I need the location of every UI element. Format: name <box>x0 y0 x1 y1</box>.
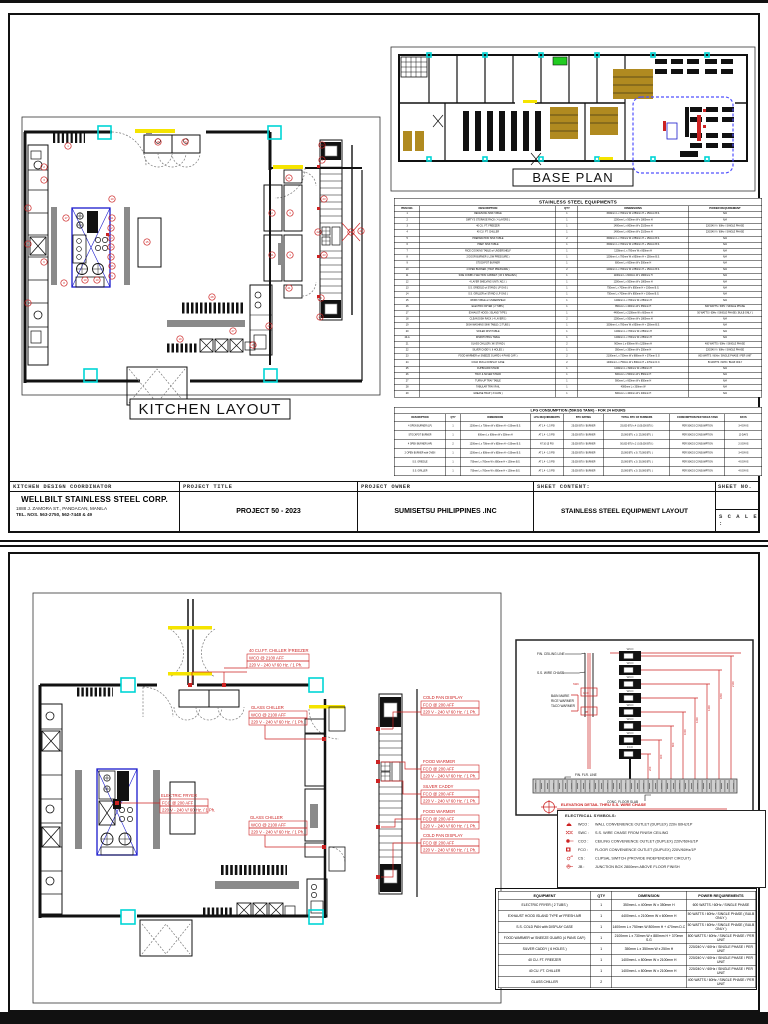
svg-text:220 V - 240 V/ 60 Hz. / 1 Ph.: 220 V - 240 V/ 60 Hz. / 1 Ph. <box>423 710 476 715</box>
column-header: DIMENSION <box>612 891 687 900</box>
svg-text:23: 23 <box>322 253 326 257</box>
table-row: EXHAUST HOOD ISLAND TYPE w/ FRESH AIR144… <box>498 911 756 922</box>
svg-text:23: 23 <box>322 197 326 201</box>
wood-grid-lines <box>550 77 653 131</box>
svg-text:GLASS CHILLER: GLASS CHILLER <box>250 815 283 820</box>
sheet-1: 1234567171011121314151698101015181821232… <box>8 13 760 533</box>
svg-text:FCO @ 200 AFF: FCO @ 200 AFF <box>162 801 194 806</box>
electrical-legend: ELECTRICAL SYMBOLS: WCO : WALL CONVENIEN… <box>557 810 766 888</box>
legend-row: FCO : FLOOR CONVENIENCE OUTLET (DUPLEX) … <box>565 846 766 855</box>
lpg-table-body: 4 OPEN BURNER (LP)11200mm L x 700mm W x … <box>394 422 762 476</box>
lpg-table-header: DESCRIPTIONQTYDIMENSIONSLPG REQUIREMENTS… <box>394 414 762 422</box>
svg-text:18: 18 <box>183 140 187 144</box>
svg-text:21: 21 <box>287 176 291 180</box>
svg-text:26: 26 <box>359 229 363 233</box>
annotation-title: 40 CU.FT. CHILLER /FREEZER <box>249 648 309 653</box>
svg-text:ELECTRIC FRYER: ELECTRIC FRYER <box>161 793 197 798</box>
annotation-food-warmer-1: FOOD WARMER FCO @ 200 AFF 220 V - 240 V/… <box>381 759 479 779</box>
door-highlight <box>135 129 175 133</box>
column-header: LPG REQUIREMENTS <box>530 414 563 422</box>
svg-text:3: 3 <box>289 211 291 215</box>
kitchen-title-box: KITCHEN LAYOUT <box>130 399 290 419</box>
svg-text:9: 9 <box>111 274 113 278</box>
equipment-table-2-header: EQUIPMENTQTYDIMENSIONPOWER REQUIREMENTS <box>498 891 756 900</box>
svg-text:WCO: WCO <box>627 661 635 665</box>
item-callouts: 1234567171011121314151698101015181821232… <box>25 139 364 348</box>
svg-text:FOOD WARMER: FOOD WARMER <box>423 759 455 764</box>
svg-text:SILVER CADDY: SILVER CADDY <box>423 784 454 789</box>
sheet-content-value: STAINLESS STEEL EQUIPMENT LAYOUT <box>534 492 715 530</box>
svg-text:800: 800 <box>671 742 675 747</box>
equipment-table-title: STAINLESS STEEL EQUIPMENTS <box>394 198 762 206</box>
annotation-silver-caddy: SILVER CADDY FCO @ 200 AFF 220 V - 240 V… <box>381 781 479 804</box>
dining-tables <box>463 59 734 151</box>
table-row: SILVER CADDY ( 6 HOLES )1350mm L x 350mm… <box>498 944 756 955</box>
svg-text:1200: 1200 <box>695 717 699 723</box>
svg-text:COLD PAN DISPLAY: COLD PAN DISPLAY <box>423 833 463 838</box>
svg-text:220 V - 240 V/ 60 Hz. / 1 Ph.: 220 V - 240 V/ 60 Hz. / 1 Ph. <box>423 848 476 853</box>
walls <box>24 129 362 383</box>
coordinator-label: KITCHEN DESIGN COORDINATOR <box>10 482 179 492</box>
svg-text:4: 4 <box>27 206 29 210</box>
table-row: S.S. GRILLER1750mm L x 700mm W x 850mm H… <box>394 467 762 476</box>
dimension-lines: 200 400 800 1000 1200 1400 1800 2100 <box>641 656 735 779</box>
svg-text:GLASS CHILLER: GLASS CHILLER <box>251 705 284 710</box>
baseplan-title-box: BASE PLAN <box>513 169 633 186</box>
scale-label: S C A L E : <box>716 510 758 527</box>
sheet-content-label: SHEET CONTENT: <box>534 482 715 492</box>
company-tel: TEL. NOS. 563-2750, 562-7448 & 49 <box>16 512 179 517</box>
jb-symbol-icon <box>565 862 578 871</box>
svg-text:17: 17 <box>64 216 68 220</box>
column-header: POWER REQUIREMENTS <box>686 891 756 900</box>
sheet-content-cell: SHEET CONTENT: STAINLESS STEEL EQUIPMENT… <box>534 482 716 531</box>
top-cabinets <box>144 135 200 167</box>
equipment-table-2: EQUIPMENTQTYDIMENSIONPOWER REQUIREMENTS … <box>495 888 757 990</box>
lpg-table: LPG CONSUMPTION (50KGS TANK) - FOR 24 HO… <box>394 407 762 481</box>
table-row: 2 OPEN BURNER with OVEN11200mm L x 800mm… <box>394 449 762 458</box>
column-header: DESCRIPTION <box>394 414 445 422</box>
table-row: S.S. COLD PAN with DISPLAY CASE11400mm L… <box>498 922 756 933</box>
table-row: 40 CU. FT. CHILLER11400mm L x 800mm W x … <box>498 966 756 977</box>
svg-text:12: 12 <box>109 226 113 230</box>
svg-text:220 V - 240 V/ 60 Hz. / 1 Ph.: 220 V - 240 V/ 60 Hz. / 1 Ph. <box>251 720 304 725</box>
svg-text:400: 400 <box>659 754 663 759</box>
project-title-label: PROJECT TITLE <box>180 482 357 492</box>
svg-text:FCO @ 200 AFF: FCO @ 200 AFF <box>423 817 455 822</box>
equipment-table-2-body: ELECTRIC FRYER ( 2 TUBS )1350mm L x 400m… <box>498 900 756 988</box>
svg-text:10: 10 <box>110 197 114 201</box>
chase-code: JB <box>585 710 588 714</box>
title-block: KITCHEN DESIGN COORDINATOR WELLBILT STAI… <box>10 481 758 531</box>
svg-text:24: 24 <box>320 143 324 147</box>
annotation-line: WCO @ 2100 AFF <box>249 656 284 661</box>
svg-text:15: 15 <box>109 255 113 259</box>
svg-text:WCO: WCO <box>627 731 635 735</box>
svg-text:2: 2 <box>271 211 273 215</box>
company-address: 1888 J. ZAMORA ST., PANDACAN, MANILA <box>16 506 179 511</box>
wire-chase-label: S.S. WIRE CHASE <box>537 671 564 675</box>
svg-text:2: 2 <box>43 165 45 169</box>
door-highlight <box>273 165 303 169</box>
column-header: CONSUMPTION PER 50KGS TANK <box>670 414 725 422</box>
svg-text:1000: 1000 <box>683 729 687 735</box>
svg-text:WCO: WCO <box>627 647 635 651</box>
kitchen-layout-title: KITCHEN LAYOUT <box>139 401 282 418</box>
page-separator <box>0 540 768 547</box>
project-title-value: PROJECT 50 - 2023 <box>180 492 357 530</box>
fin-ceiling-label: FIN. CEILING LINE <box>537 652 565 656</box>
right-cabinet-bank <box>264 170 316 298</box>
svg-text:FCO @ 200 AFF: FCO @ 200 AFF <box>423 767 455 772</box>
equipment-table-body: 1RECEIVING SINK TABLE11500mm L x 700mm W… <box>394 211 762 397</box>
legend-row: WCO : WALL CONVENIENCE OUTLET (DUPLEX) 2… <box>565 820 766 829</box>
annotation-electric-fryer: ELECTRIC FRYER FCO @ 200 AFF 220 V - 240… <box>115 793 215 813</box>
column-header: BTU RATING <box>563 414 603 422</box>
left-counter-line <box>28 145 48 365</box>
column-header: DIMENSIONS <box>460 414 530 422</box>
annotation-food-warmer-2: FOOD WARMER FCO @ 200 AFF 220 V - 240 V/… <box>381 809 479 829</box>
svg-text:FCO: FCO <box>627 745 634 749</box>
svg-text:19: 19 <box>178 337 182 341</box>
svg-text:220 V - 240 V/ 60 Hz. / 1 Ph.: 220 V - 240 V/ 60 Hz. / 1 Ph. <box>423 824 476 829</box>
door-highlight <box>168 626 212 630</box>
floor-slab: FIN. FLR. LINE CONC. FLOOR SLAB <box>533 773 737 804</box>
project-owner-value: SUMISETSU PHILIPPINES .INC <box>358 492 533 530</box>
kitchen-layout-drawing: 1234567171011121314151698101015181821232… <box>20 115 392 427</box>
page-top-edge <box>0 0 768 3</box>
project-owner-label: PROJECT OWNER <box>358 482 533 492</box>
column-header: TOTAL BTU OF BURNERS <box>604 414 670 422</box>
legend-row: CCO : CEILING CONVENIENCE OUTLET (DUPLEX… <box>565 837 766 846</box>
svg-text:25: 25 <box>267 324 271 328</box>
svg-text:10: 10 <box>95 278 99 282</box>
sheet-2: 40 CU.FT. CHILLER /FREEZER WCO @ 2100 AF… <box>8 552 760 1012</box>
dish-display-area <box>203 870 299 917</box>
svg-text:16: 16 <box>110 264 114 268</box>
svg-text:WCO @ 2100 AFF: WCO @ 2100 AFF <box>251 823 286 828</box>
green-marker <box>553 57 567 65</box>
dish-display-area <box>167 308 255 352</box>
svg-text:FOOD WARMER: FOOD WARMER <box>423 809 455 814</box>
svg-text:1800: 1800 <box>719 693 723 699</box>
svg-text:220 V - 240 V/ 60 Hz. / 1 Ph.: 220 V - 240 V/ 60 Hz. / 1 Ph. <box>162 808 215 813</box>
coordinator-cell: KITCHEN DESIGN COORDINATOR WELLBILT STAI… <box>10 482 180 531</box>
base-plan-title: BASE PLAN <box>532 170 613 185</box>
equip-label: TACO WARMER <box>551 704 576 708</box>
svg-text:24: 24 <box>318 315 322 319</box>
equip-label: RICE WARMER <box>551 699 575 703</box>
base-plan-drawing: BASE PLAN <box>385 45 762 203</box>
svg-text:22: 22 <box>316 230 320 234</box>
svg-text:WCO @ 2100 AFF: WCO @ 2100 AFF <box>251 713 286 718</box>
annotation-line: 220 V - 240 V/ 60 Hz. / 1 Ph. <box>249 663 302 668</box>
column-header: QTY <box>446 414 461 422</box>
svg-text:WCO: WCO <box>627 703 635 707</box>
column-header: QTY <box>591 891 612 900</box>
svg-text:220 V - 240 V/ 60 Hz. / 1 Ph.: 220 V - 240 V/ 60 Hz. / 1 Ph. <box>251 830 304 835</box>
legend-title: ELECTRICAL SYMBOLS: <box>565 814 766 819</box>
table-row: 40 CU. FT. FREEZER11400mm L x 800mm W x … <box>498 955 756 966</box>
cooking-island <box>72 208 110 287</box>
svg-text:200: 200 <box>648 766 652 771</box>
svg-text:1400: 1400 <box>707 705 711 711</box>
svg-text:10: 10 <box>83 278 87 282</box>
legend-row: CS : CLIPSAL SWITCH (PROVIDE INDEPENDENT… <box>565 854 766 863</box>
svg-text:COLD PAN DISPLAY: COLD PAN DISPLAY <box>423 695 463 700</box>
equipment-table-1: STAINLESS STEEL EQUIPMENTS ITEM NO.DESCR… <box>394 198 762 401</box>
work-table <box>138 218 161 267</box>
svg-text:1: 1 <box>67 144 69 148</box>
svg-text:4: 4 <box>289 253 291 257</box>
svg-text:18: 18 <box>156 140 160 144</box>
chase-code: SWC <box>573 682 579 686</box>
table-row: FOOD WARMER w/ SNEEZE GUARD (4 PANS CAP.… <box>498 933 756 944</box>
table-row: S.S. GRIDDLE1750mm L x 700mm W x 850mm H… <box>394 458 762 467</box>
svg-text:3: 3 <box>320 296 322 300</box>
entry-vestibule <box>140 920 192 956</box>
top-cabinets <box>174 683 244 720</box>
left-counter-line <box>40 704 62 914</box>
svg-text:2100: 2100 <box>731 681 735 687</box>
column-header: DAYS <box>725 414 762 422</box>
page-bottom-edge <box>0 1012 768 1024</box>
svg-text:11: 11 <box>111 216 114 220</box>
project-owner-cell: PROJECT OWNER SUMISETSU PHILIPPINES .INC <box>358 482 534 531</box>
company-name: WELLBILT STAINLESS STEEL CORP. <box>10 495 179 504</box>
svg-text:WCO: WCO <box>627 689 635 693</box>
table-row: STOCKPOT BURNER1600mm L x 600mm W x 500m… <box>394 431 762 440</box>
svg-text:27: 27 <box>231 329 235 333</box>
table-row: 29GREASE TRAP ( 3 CANS )1600mm L x 400mm… <box>394 391 762 397</box>
svg-text:5: 5 <box>27 242 29 246</box>
table-row: 4 OPEN BURNER (LP)11200mm L x 700mm W x … <box>394 422 762 431</box>
serving-counter <box>376 694 402 894</box>
svg-text:6: 6 <box>43 260 45 264</box>
annotation-glass-chiller-1: GLASS CHILLER WCO @ 2100 AFF 220 V - 240… <box>249 705 326 741</box>
equip-label: BAIN MARIE <box>551 694 569 698</box>
outlet-column: WCO WCO WCO WCO WCO WCO WCO FCO <box>619 647 641 779</box>
svg-text:FCO @ 200 AFF: FCO @ 200 AFF <box>423 841 455 846</box>
svg-text:29: 29 <box>251 343 255 347</box>
table-row: GLASS CHILLER2400 WATTS / 60Hz / SINGLE … <box>498 977 756 988</box>
legend-row: JB : JUNCTION BOX 2800mm ABOVE FLOOR FIN… <box>565 863 766 872</box>
chase-code: CCO <box>583 691 589 695</box>
svg-text:28: 28 <box>210 295 214 299</box>
sheet-no-label: SHEET NO. <box>716 482 758 492</box>
svg-text:220 V - 240 V/ 60 Hz. / 1 Ph.: 220 V - 240 V/ 60 Hz. / 1 Ph. <box>423 799 476 804</box>
svg-text:8: 8 <box>63 281 65 285</box>
svg-text:21: 21 <box>287 286 291 290</box>
svg-text:220 V - 240 V/ 60 Hz. / 1 Ph.: 220 V - 240 V/ 60 Hz. / 1 Ph. <box>423 774 476 779</box>
fin-flr-label: FIN. FLR. LINE <box>575 773 597 777</box>
door-highlight <box>168 672 212 676</box>
table-row: ELECTRIC FRYER ( 2 TUBS )1350mm L x 400m… <box>498 900 756 911</box>
svg-text:WCO: WCO <box>627 717 635 721</box>
svg-text:13: 13 <box>109 236 113 240</box>
svg-text:WCO: WCO <box>627 675 635 679</box>
cooking-island <box>97 769 137 855</box>
sheet-no-value <box>716 492 758 510</box>
svg-text:FCO @ 200 AFF: FCO @ 200 AFF <box>423 703 455 708</box>
table-row: 4 OPEN BURNER (HP)21200mm L x 700mm W x … <box>394 440 762 449</box>
elevation-title: ELEVATION DETAIL THRU S.S. WIRE CHASE <box>561 802 646 807</box>
column-header: EQUIPMENT <box>498 891 591 900</box>
svg-text:14: 14 <box>109 245 113 249</box>
project-title-cell: PROJECT TITLE PROJECT 50 - 2023 <box>180 482 358 531</box>
electrical-layout-drawing: 40 CU.FT. CHILLER /FREEZER WCO @ 2100 AF… <box>25 579 505 1009</box>
sheet-no-cell: SHEET NO. S C A L E : <box>716 482 758 531</box>
svg-text:22: 22 <box>349 230 353 234</box>
svg-text:21: 21 <box>270 253 274 257</box>
elevation-detail-drawing: FIN. CEILING LINE S.S. WIRE CHASE SWC CC… <box>515 639 755 817</box>
svg-text:FCO @ 200 AFF: FCO @ 200 AFF <box>423 792 455 797</box>
walls <box>40 599 417 918</box>
svg-text:3: 3 <box>43 178 45 182</box>
legend-row: SWC : S.S. WIRE CHASE FROM FINISH CEILIN… <box>565 829 766 838</box>
svg-text:15: 15 <box>145 240 149 244</box>
annotation-chiller-freezer: 40 CU.FT. CHILLER /FREEZER WCO @ 2100 AF… <box>192 648 309 685</box>
